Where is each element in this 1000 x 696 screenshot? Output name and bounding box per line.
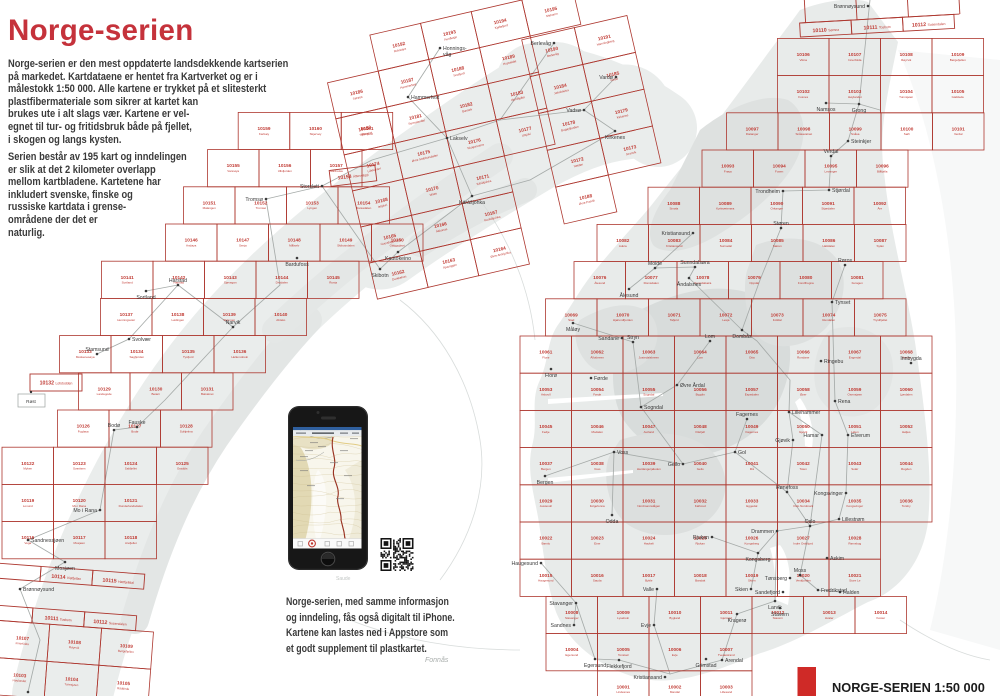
svg-text:Sylan: Sylan: [876, 244, 884, 248]
svg-text:Modalen: Modalen: [591, 430, 603, 434]
svg-text:Arendal: Arendal: [725, 658, 743, 664]
svg-text:Kristiansund: Kristiansund: [666, 244, 683, 248]
svg-text:Lakselv: Lakselv: [450, 136, 468, 142]
svg-text:10120: 10120: [73, 498, 86, 503]
svg-text:10047: 10047: [642, 424, 655, 429]
svg-text:10018: 10018: [694, 573, 707, 578]
svg-text:Evje: Evje: [672, 653, 678, 657]
svg-text:10083: 10083: [668, 238, 681, 243]
svg-text:Haugesund: Haugesund: [538, 579, 554, 583]
svg-text:10088: 10088: [667, 201, 680, 206]
svg-text:10061: 10061: [539, 350, 552, 355]
svg-text:Lillehammer: Lillehammer: [792, 410, 821, 416]
svg-text:10007: 10007: [720, 647, 733, 652]
svg-text:Bergen: Bergen: [541, 467, 551, 471]
svg-text:10041: 10041: [745, 461, 758, 466]
svg-text:Koster: Koster: [876, 616, 885, 620]
svg-text:10082: 10082: [616, 238, 629, 243]
svg-text:Oslo Nordmark: Oslo Nordmark: [793, 504, 814, 508]
svg-text:Rjukan: Rjukan: [693, 535, 709, 541]
svg-text:Voss: Voss: [617, 450, 629, 456]
svg-text:10100: 10100: [900, 126, 913, 131]
svg-text:10160: 10160: [309, 126, 322, 131]
svg-text:10094: 10094: [773, 164, 786, 169]
svg-text:Evje: Evje: [641, 623, 651, 629]
svg-text:10032: 10032: [694, 498, 707, 503]
svg-text:Rømskog: Rømskog: [848, 541, 861, 545]
svg-text:Vestfjorden: Vestfjorden: [796, 579, 811, 583]
svg-text:Sortland: Sortland: [136, 295, 155, 301]
svg-text:Ålesund: Ålesund: [620, 292, 639, 299]
svg-text:10070: 10070: [616, 312, 629, 317]
svg-text:10043: 10043: [848, 461, 861, 466]
svg-text:Rosta: Rosta: [329, 281, 337, 285]
svg-text:Hønefoss: Hønefoss: [776, 485, 799, 491]
svg-text:10026: 10026: [745, 536, 758, 541]
svg-text:Kirkenes: Kirkenes: [605, 135, 626, 141]
svg-text:Verdal: Verdal: [954, 132, 963, 136]
svg-text:Svartisen: Svartisen: [73, 467, 86, 471]
svg-text:Ljørdalen: Ljørdalen: [900, 393, 913, 397]
svg-text:10096: 10096: [876, 164, 889, 169]
svg-text:Smøla: Smøla: [669, 207, 678, 211]
svg-text:10138: 10138: [171, 312, 184, 317]
svg-text:Stad: Stad: [568, 318, 575, 322]
svg-text:Ullsfjorden: Ullsfjorden: [278, 169, 293, 173]
svg-text:Hamar: Hamar: [803, 433, 819, 439]
svg-text:10154: 10154: [357, 200, 370, 205]
svg-text:Førde: Førde: [594, 376, 608, 382]
svg-text:Fagernes: Fagernes: [745, 430, 758, 434]
svg-text:Haltdalen: Haltdalen: [822, 244, 835, 248]
svg-text:Flekkefjord: Flekkefjord: [606, 664, 631, 670]
svg-text:10009: 10009: [617, 610, 630, 615]
svg-text:Sortland: Sortland: [122, 281, 134, 285]
svg-text:Bardufoss: Bardufoss: [285, 262, 309, 268]
svg-text:Lødingen: Lødingen: [172, 318, 185, 322]
svg-text:Tynset: Tynset: [835, 300, 851, 306]
svg-text:Skibotndalen: Skibotndalen: [337, 243, 355, 247]
svg-text:Berlevåg: Berlevåg: [531, 40, 552, 47]
svg-text:Bodø: Bodø: [108, 423, 121, 429]
svg-text:Kristiansund: Kristiansund: [661, 231, 690, 237]
svg-text:Røyrvik: Røyrvik: [901, 58, 912, 62]
svg-text:Skien: Skien: [748, 579, 756, 583]
svg-text:Molde: Molde: [648, 261, 662, 267]
svg-text:Sogndal: Sogndal: [643, 393, 654, 397]
svg-text:Geilo: Geilo: [668, 462, 680, 468]
svg-text:Arefjellet: Arefjellet: [125, 541, 137, 545]
svg-text:Saltfjellet: Saltfjellet: [125, 467, 137, 471]
svg-text:10045: 10045: [539, 424, 552, 429]
svg-text:10039: 10039: [642, 461, 655, 466]
svg-text:Ålesund: Ålesund: [594, 280, 605, 285]
svg-text:Lindesnes: Lindesnes: [616, 690, 630, 694]
svg-text:Florø: Florø: [545, 373, 558, 379]
svg-text:Bergen: Bergen: [537, 480, 554, 486]
svg-text:10040: 10040: [694, 461, 707, 466]
svg-text:Rendalen: Rendalen: [822, 318, 835, 322]
svg-text:10027: 10027: [797, 536, 810, 541]
svg-text:Florø: Florø: [542, 355, 549, 359]
svg-text:Øvre Årdal: Øvre Årdal: [680, 382, 705, 389]
svg-text:Austevoll: Austevoll: [540, 504, 553, 508]
svg-text:Snåsa: Snåsa: [851, 132, 860, 136]
svg-text:10074: 10074: [822, 312, 835, 317]
svg-text:10035: 10035: [848, 498, 861, 503]
svg-text:Tromsø: Tromsø: [256, 206, 266, 210]
svg-text:Kongsberg: Kongsberg: [745, 541, 760, 545]
svg-text:Osensjøen: Osensjøen: [848, 393, 863, 397]
svg-text:Grimstad: Grimstad: [695, 663, 716, 669]
svg-text:10105: 10105: [951, 89, 964, 94]
svg-text:10134: 10134: [130, 349, 143, 354]
svg-text:Dombås: Dombås: [732, 333, 752, 340]
svg-text:Sagfjorden: Sagfjorden: [130, 355, 145, 359]
svg-text:10092: 10092: [873, 201, 886, 206]
svg-text:10048: 10048: [694, 424, 707, 429]
svg-text:Egersund: Egersund: [584, 663, 606, 669]
svg-text:Flå: Flå: [750, 467, 754, 471]
svg-text:Vadsø: Vadsø: [566, 108, 581, 114]
svg-text:10084: 10084: [719, 238, 732, 243]
svg-text:Oppdal: Oppdal: [749, 281, 759, 285]
svg-text:Skjervøy: Skjervøy: [310, 132, 322, 136]
svg-text:Hardangerjøkulen: Hardangerjøkulen: [637, 467, 661, 471]
svg-text:Narvik: Narvik: [226, 320, 241, 326]
svg-text:Sauda: Sauda: [593, 579, 602, 583]
svg-text:10002: 10002: [668, 684, 681, 689]
svg-text:Blåfjella: Blåfjella: [877, 169, 888, 173]
svg-text:Moss: Moss: [794, 568, 807, 574]
svg-text:Senja: Senja: [239, 243, 247, 247]
svg-text:Voss: Voss: [594, 467, 601, 471]
svg-text:10149: 10149: [339, 238, 352, 243]
svg-text:Tonstad: Tonstad: [618, 653, 629, 657]
svg-text:10087: 10087: [874, 238, 887, 243]
svg-text:Namsos: Namsos: [816, 107, 835, 113]
svg-text:Lovund: Lovund: [23, 504, 33, 508]
svg-text:10066: 10066: [797, 350, 810, 355]
svg-text:10003: 10003: [720, 684, 733, 689]
svg-text:Toten: Toten: [800, 467, 808, 471]
svg-text:10129: 10129: [98, 386, 111, 391]
svg-text:10059: 10059: [848, 387, 861, 392]
svg-text:Oslo: Oslo: [805, 519, 816, 525]
svg-text:Høljes: Høljes: [902, 430, 911, 434]
svg-text:Røst: Røst: [26, 399, 36, 404]
svg-text:Gäddede: Gäddede: [952, 95, 965, 99]
svg-text:10014: 10014: [874, 610, 887, 615]
svg-text:Ringebu: Ringebu: [824, 359, 843, 365]
svg-text:Haugesund: Haugesund: [511, 561, 538, 567]
svg-text:Sulitjelma: Sulitjelma: [180, 429, 193, 433]
svg-text:10136: 10136: [233, 349, 246, 354]
svg-text:10076: 10076: [593, 275, 606, 280]
svg-text:Røros: Røros: [838, 258, 853, 264]
svg-text:10125: 10125: [176, 461, 189, 466]
svg-text:Storslett: Storslett: [300, 184, 320, 190]
svg-text:Beiarn: Beiarn: [151, 392, 160, 396]
svg-text:Gálggojávri: Gálggojávri: [390, 243, 406, 247]
svg-text:Sandefjord: Sandefjord: [755, 590, 780, 596]
svg-text:Sjøvegan: Sjøvegan: [224, 281, 237, 285]
svg-text:10085: 10085: [771, 238, 784, 243]
svg-text:Kongsvinger: Kongsvinger: [814, 491, 843, 497]
svg-text:Etne: Etne: [594, 541, 601, 545]
svg-text:Torsby: Torsby: [902, 504, 911, 508]
svg-text:10051: 10051: [848, 424, 861, 429]
svg-text:10005: 10005: [617, 647, 630, 652]
svg-text:Odda: Odda: [606, 519, 619, 525]
svg-text:Stjørdal: Stjørdal: [832, 188, 850, 194]
svg-text:Valle: Valle: [643, 587, 654, 593]
svg-text:10139: 10139: [223, 312, 236, 317]
svg-text:10024: 10024: [642, 536, 655, 541]
svg-text:Svolvær: Svolvær: [132, 337, 151, 343]
svg-text:Støren: Støren: [773, 221, 789, 227]
svg-text:10119: 10119: [21, 498, 34, 503]
svg-text:Drammen: Drammen: [751, 529, 774, 535]
svg-text:10143: 10143: [224, 275, 237, 280]
svg-text:10126: 10126: [77, 424, 90, 429]
svg-text:Henningsvær: Henningsvær: [117, 318, 135, 322]
svg-text:Ålfotbreen: Ålfotbreen: [590, 354, 604, 359]
svg-text:10078: 10078: [696, 275, 709, 280]
svg-text:Fonnås: Fonnås: [425, 656, 449, 664]
svg-text:10090: 10090: [770, 201, 783, 206]
svg-text:10055: 10055: [642, 387, 655, 392]
svg-text:Egersund: Egersund: [565, 653, 578, 657]
svg-text:Førde: Førde: [593, 393, 601, 397]
svg-text:10097: 10097: [746, 126, 759, 131]
svg-text:Rondane: Rondane: [797, 355, 810, 359]
svg-text:Brønnøysund: Brønnøysund: [23, 587, 54, 593]
svg-text:10124: 10124: [124, 461, 137, 466]
svg-text:Bygland: Bygland: [669, 616, 680, 620]
svg-text:10049: 10049: [745, 424, 758, 429]
svg-text:10008: 10008: [565, 610, 578, 615]
svg-text:10098: 10098: [797, 126, 810, 131]
svg-text:Øyer: Øyer: [800, 393, 807, 397]
svg-text:10030: 10030: [591, 498, 604, 503]
svg-text:10075: 10075: [874, 312, 887, 317]
svg-text:Halden: Halden: [843, 590, 860, 596]
svg-text:Espedalen: Espedalen: [745, 393, 760, 397]
svg-text:10148: 10148: [288, 238, 301, 243]
svg-text:10022: 10022: [539, 536, 552, 541]
svg-text:10001: 10001: [617, 684, 630, 689]
svg-text:Forollhogna: Forollhogna: [798, 281, 814, 285]
svg-text:Fugløya: Fugløya: [78, 429, 89, 433]
svg-text:Vannøya: Vannøya: [227, 169, 239, 173]
svg-text:Mo i Rana: Mo i Rana: [73, 508, 97, 514]
svg-text:10072: 10072: [719, 312, 732, 317]
svg-text:Trysilfjellet: Trysilfjellet: [873, 318, 887, 322]
svg-text:Saude: Saude: [336, 576, 351, 582]
svg-text:10063: 10063: [642, 350, 655, 355]
svg-text:Bømlo: Bømlo: [541, 541, 550, 545]
svg-text:Otta: Otta: [749, 355, 755, 359]
svg-text:Harstad: Harstad: [169, 278, 187, 284]
svg-text:Åre: Åre: [877, 206, 882, 211]
svg-text:10015: 10015: [539, 573, 552, 578]
svg-text:Myken: Myken: [23, 467, 32, 471]
svg-text:10034: 10034: [797, 498, 810, 503]
svg-text:10021: 10021: [848, 573, 861, 578]
svg-text:Store Le: Store Le: [849, 579, 861, 583]
svg-text:Bodø: Bodø: [131, 429, 138, 433]
svg-text:Hjørundfjorden: Hjørundfjorden: [613, 318, 633, 322]
svg-text:10101: 10101: [952, 126, 965, 131]
svg-text:Skien: Skien: [735, 587, 748, 593]
svg-text:Frøya: Frøya: [724, 169, 732, 173]
svg-text:Levanger: Levanger: [825, 169, 838, 173]
svg-text:10011: 10011: [720, 610, 733, 615]
svg-text:10093: 10093: [721, 164, 734, 169]
svg-text:Lysebotn: Lysebotn: [617, 616, 629, 620]
svg-text:Bandak: Bandak: [695, 579, 706, 583]
svg-text:10151: 10151: [203, 200, 216, 205]
svg-text:Flatanger: Flatanger: [746, 132, 759, 136]
svg-text:Sogndal: Sogndal: [644, 405, 663, 411]
svg-text:10071: 10071: [668, 312, 681, 317]
svg-text:10023: 10023: [591, 536, 604, 541]
svg-text:Fauske: Fauske: [128, 420, 145, 426]
svg-text:Måløy: Måløy: [566, 326, 581, 333]
svg-text:10123: 10123: [73, 461, 86, 466]
svg-text:NORGE-SERIEN 1:50 000: NORGE-SERIEN 1:50 000: [832, 680, 985, 695]
svg-text:Tønsberg: Tønsberg: [765, 576, 787, 582]
svg-text:10117: 10117: [73, 535, 86, 540]
svg-text:10135: 10135: [182, 349, 195, 354]
svg-text:10130: 10130: [149, 386, 162, 391]
svg-text:Kragerø: Kragerø: [728, 618, 748, 624]
svg-text:Brønnøysund: Brønnøysund: [834, 4, 865, 10]
svg-text:Vardø: Vardø: [599, 75, 614, 81]
svg-text:Skibotn: Skibotn: [371, 273, 388, 279]
svg-text:10068: 10068: [900, 350, 913, 355]
svg-text:Hammerfest: Hammerfest: [411, 95, 440, 101]
svg-text:10029: 10029: [539, 498, 552, 503]
svg-text:10060: 10060: [900, 387, 913, 392]
svg-text:Tafjord: Tafjord: [670, 318, 679, 322]
svg-text:10053: 10053: [539, 387, 552, 392]
svg-text:10004: 10004: [565, 647, 578, 652]
svg-text:Malangen: Malangen: [203, 206, 217, 210]
svg-text:10153: 10153: [306, 200, 319, 205]
svg-text:Målselv: Målselv: [289, 243, 300, 247]
svg-text:Lyngen: Lyngen: [307, 206, 317, 210]
svg-text:10144: 10144: [275, 275, 288, 280]
svg-text:Abisko: Abisko: [276, 318, 285, 322]
svg-text:Reisadalen: Reisadalen: [356, 206, 371, 210]
svg-text:Kautokeino: Kautokeino: [385, 256, 411, 262]
svg-text:Bygdin: Bygdin: [696, 393, 706, 397]
svg-text:10036: 10036: [900, 498, 913, 503]
svg-text:10016: 10016: [591, 573, 604, 578]
svg-text:Tunnsjøen: Tunnsjøen: [899, 95, 913, 99]
svg-text:10108: 10108: [900, 52, 913, 57]
svg-text:Fosnes: Fosnes: [798, 95, 808, 99]
svg-text:Lom: Lom: [705, 334, 715, 340]
svg-text:Snåsavatnet: Snåsavatnet: [795, 132, 812, 136]
svg-text:Mandal: Mandal: [670, 690, 680, 694]
svg-text:10037: 10037: [539, 461, 552, 466]
svg-text:10107: 10107: [848, 52, 861, 57]
svg-text:Innerfolda: Innerfolda: [848, 58, 862, 62]
svg-text:Lillestrøm: Lillestrøm: [842, 517, 864, 523]
svg-text:Rena: Rena: [838, 399, 851, 405]
svg-text:Haukeli: Haukeli: [644, 541, 654, 545]
svg-text:10103: 10103: [848, 89, 861, 94]
svg-text:10050: 10050: [797, 424, 810, 429]
svg-text:10095: 10095: [824, 164, 837, 169]
svg-text:10106: 10106: [797, 52, 810, 57]
svg-text:Kristiansand: Kristiansand: [633, 675, 662, 681]
svg-text:10121: 10121: [124, 498, 137, 503]
svg-text:Elverum: Elverum: [851, 433, 870, 439]
svg-text:10131: 10131: [201, 386, 214, 391]
svg-text:10062: 10062: [591, 350, 604, 355]
svg-text:Fagernes: Fagernes: [736, 412, 758, 418]
svg-text:10140: 10140: [274, 312, 287, 317]
svg-text:Folgefonna: Folgefonna: [590, 504, 605, 508]
svg-text:10019: 10019: [745, 573, 758, 578]
svg-text:Moskenesøya: Moskenesøya: [76, 355, 95, 359]
svg-text:Hvaler: Hvaler: [825, 616, 834, 620]
svg-text:Steinkjer: Steinkjer: [851, 139, 871, 145]
svg-text:Lom: Lom: [697, 355, 703, 359]
svg-text:Feragen: Feragen: [852, 281, 864, 285]
svg-text:10091: 10091: [822, 201, 835, 206]
svg-text:10013: 10013: [823, 610, 836, 615]
svg-text:Graddis: Graddis: [177, 467, 188, 471]
svg-text:Trondheim: Trondheim: [755, 189, 780, 195]
svg-text:10157: 10157: [330, 163, 343, 168]
svg-text:Stavern: Stavern: [771, 612, 789, 618]
svg-text:10052: 10052: [900, 424, 913, 429]
svg-text:10038: 10038: [591, 461, 604, 466]
svg-text:Eggedal: Eggedal: [746, 504, 757, 508]
svg-text:Geilo: Geilo: [697, 467, 704, 471]
svg-text:Børgefjellen: Børgefjellen: [950, 58, 966, 62]
svg-text:10086: 10086: [822, 238, 835, 243]
svg-text:10081: 10081: [851, 275, 864, 280]
svg-text:Folldal: Folldal: [773, 318, 782, 322]
svg-text:10102: 10102: [797, 89, 810, 94]
svg-text:Fosen: Fosen: [775, 169, 784, 173]
svg-text:Dunderlandsdalen: Dunderlandsdalen: [119, 504, 144, 508]
svg-text:Stjørdalen: Stjørdalen: [821, 207, 835, 211]
svg-text:10044: 10044: [900, 461, 913, 466]
svg-text:Nordmannslågen: Nordmannslågen: [637, 504, 660, 508]
svg-text:10033: 10033: [745, 498, 758, 503]
svg-text:10067: 10067: [848, 350, 861, 355]
svg-text:10137: 10137: [120, 312, 133, 317]
svg-text:10042: 10042: [797, 461, 810, 466]
svg-text:10069: 10069: [565, 312, 578, 317]
svg-text:Stamsund: Stamsund: [85, 347, 108, 353]
svg-text:Dividalen: Dividalen: [276, 281, 289, 285]
svg-text:Askvoll: Askvoll: [541, 393, 551, 397]
svg-text:Mosjøen: Mosjøen: [55, 566, 75, 572]
svg-text:Kárášjohka: Kárášjohka: [459, 200, 485, 206]
svg-text:10046: 10046: [591, 424, 604, 429]
svg-text:Sunndalsøra: Sunndalsøra: [680, 260, 710, 266]
svg-text:Høylandet: Høylandet: [848, 95, 862, 99]
svg-text:Lillesand: Lillesand: [720, 690, 732, 694]
